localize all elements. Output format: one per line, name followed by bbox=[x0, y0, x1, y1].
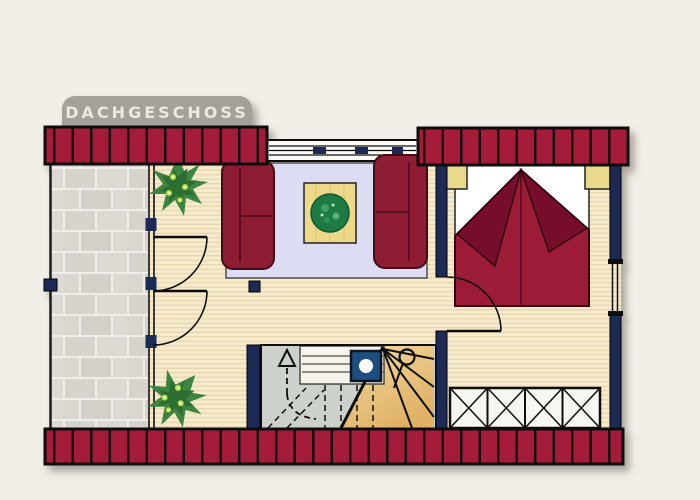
sofa-left bbox=[222, 161, 274, 269]
floorplan-drawing: DACHGESCHOSS bbox=[0, 0, 700, 500]
wardrobe bbox=[450, 388, 600, 428]
roof-edge-wall-top-right bbox=[418, 128, 628, 165]
roof-edge-wall-bottom bbox=[45, 429, 623, 464]
wall-living-bedroom-lower bbox=[436, 331, 447, 431]
sofa-right bbox=[374, 155, 427, 268]
floorplan-canvas: DACHGESCHOSS bbox=[0, 0, 700, 500]
wall-right-upper bbox=[610, 161, 621, 263]
roof-edge-wall-top-left bbox=[45, 127, 267, 164]
skylight-icon bbox=[351, 351, 381, 381]
coffee-table bbox=[304, 183, 356, 243]
terrace-floor bbox=[51, 161, 148, 431]
wall-living-bedroom-upper bbox=[436, 161, 447, 277]
wall-stair-left bbox=[247, 345, 260, 429]
structural-post bbox=[249, 281, 260, 292]
floor-title-label: DACHGESCHOSS bbox=[65, 103, 248, 122]
table-bowl-icon bbox=[311, 194, 349, 232]
wall-right-lower bbox=[610, 313, 621, 431]
nightstand-right bbox=[585, 165, 610, 189]
plan-body: DACHGESCHOSS bbox=[44, 96, 628, 464]
terrace-edge-post bbox=[44, 279, 57, 291]
winder-staircase bbox=[261, 345, 436, 429]
